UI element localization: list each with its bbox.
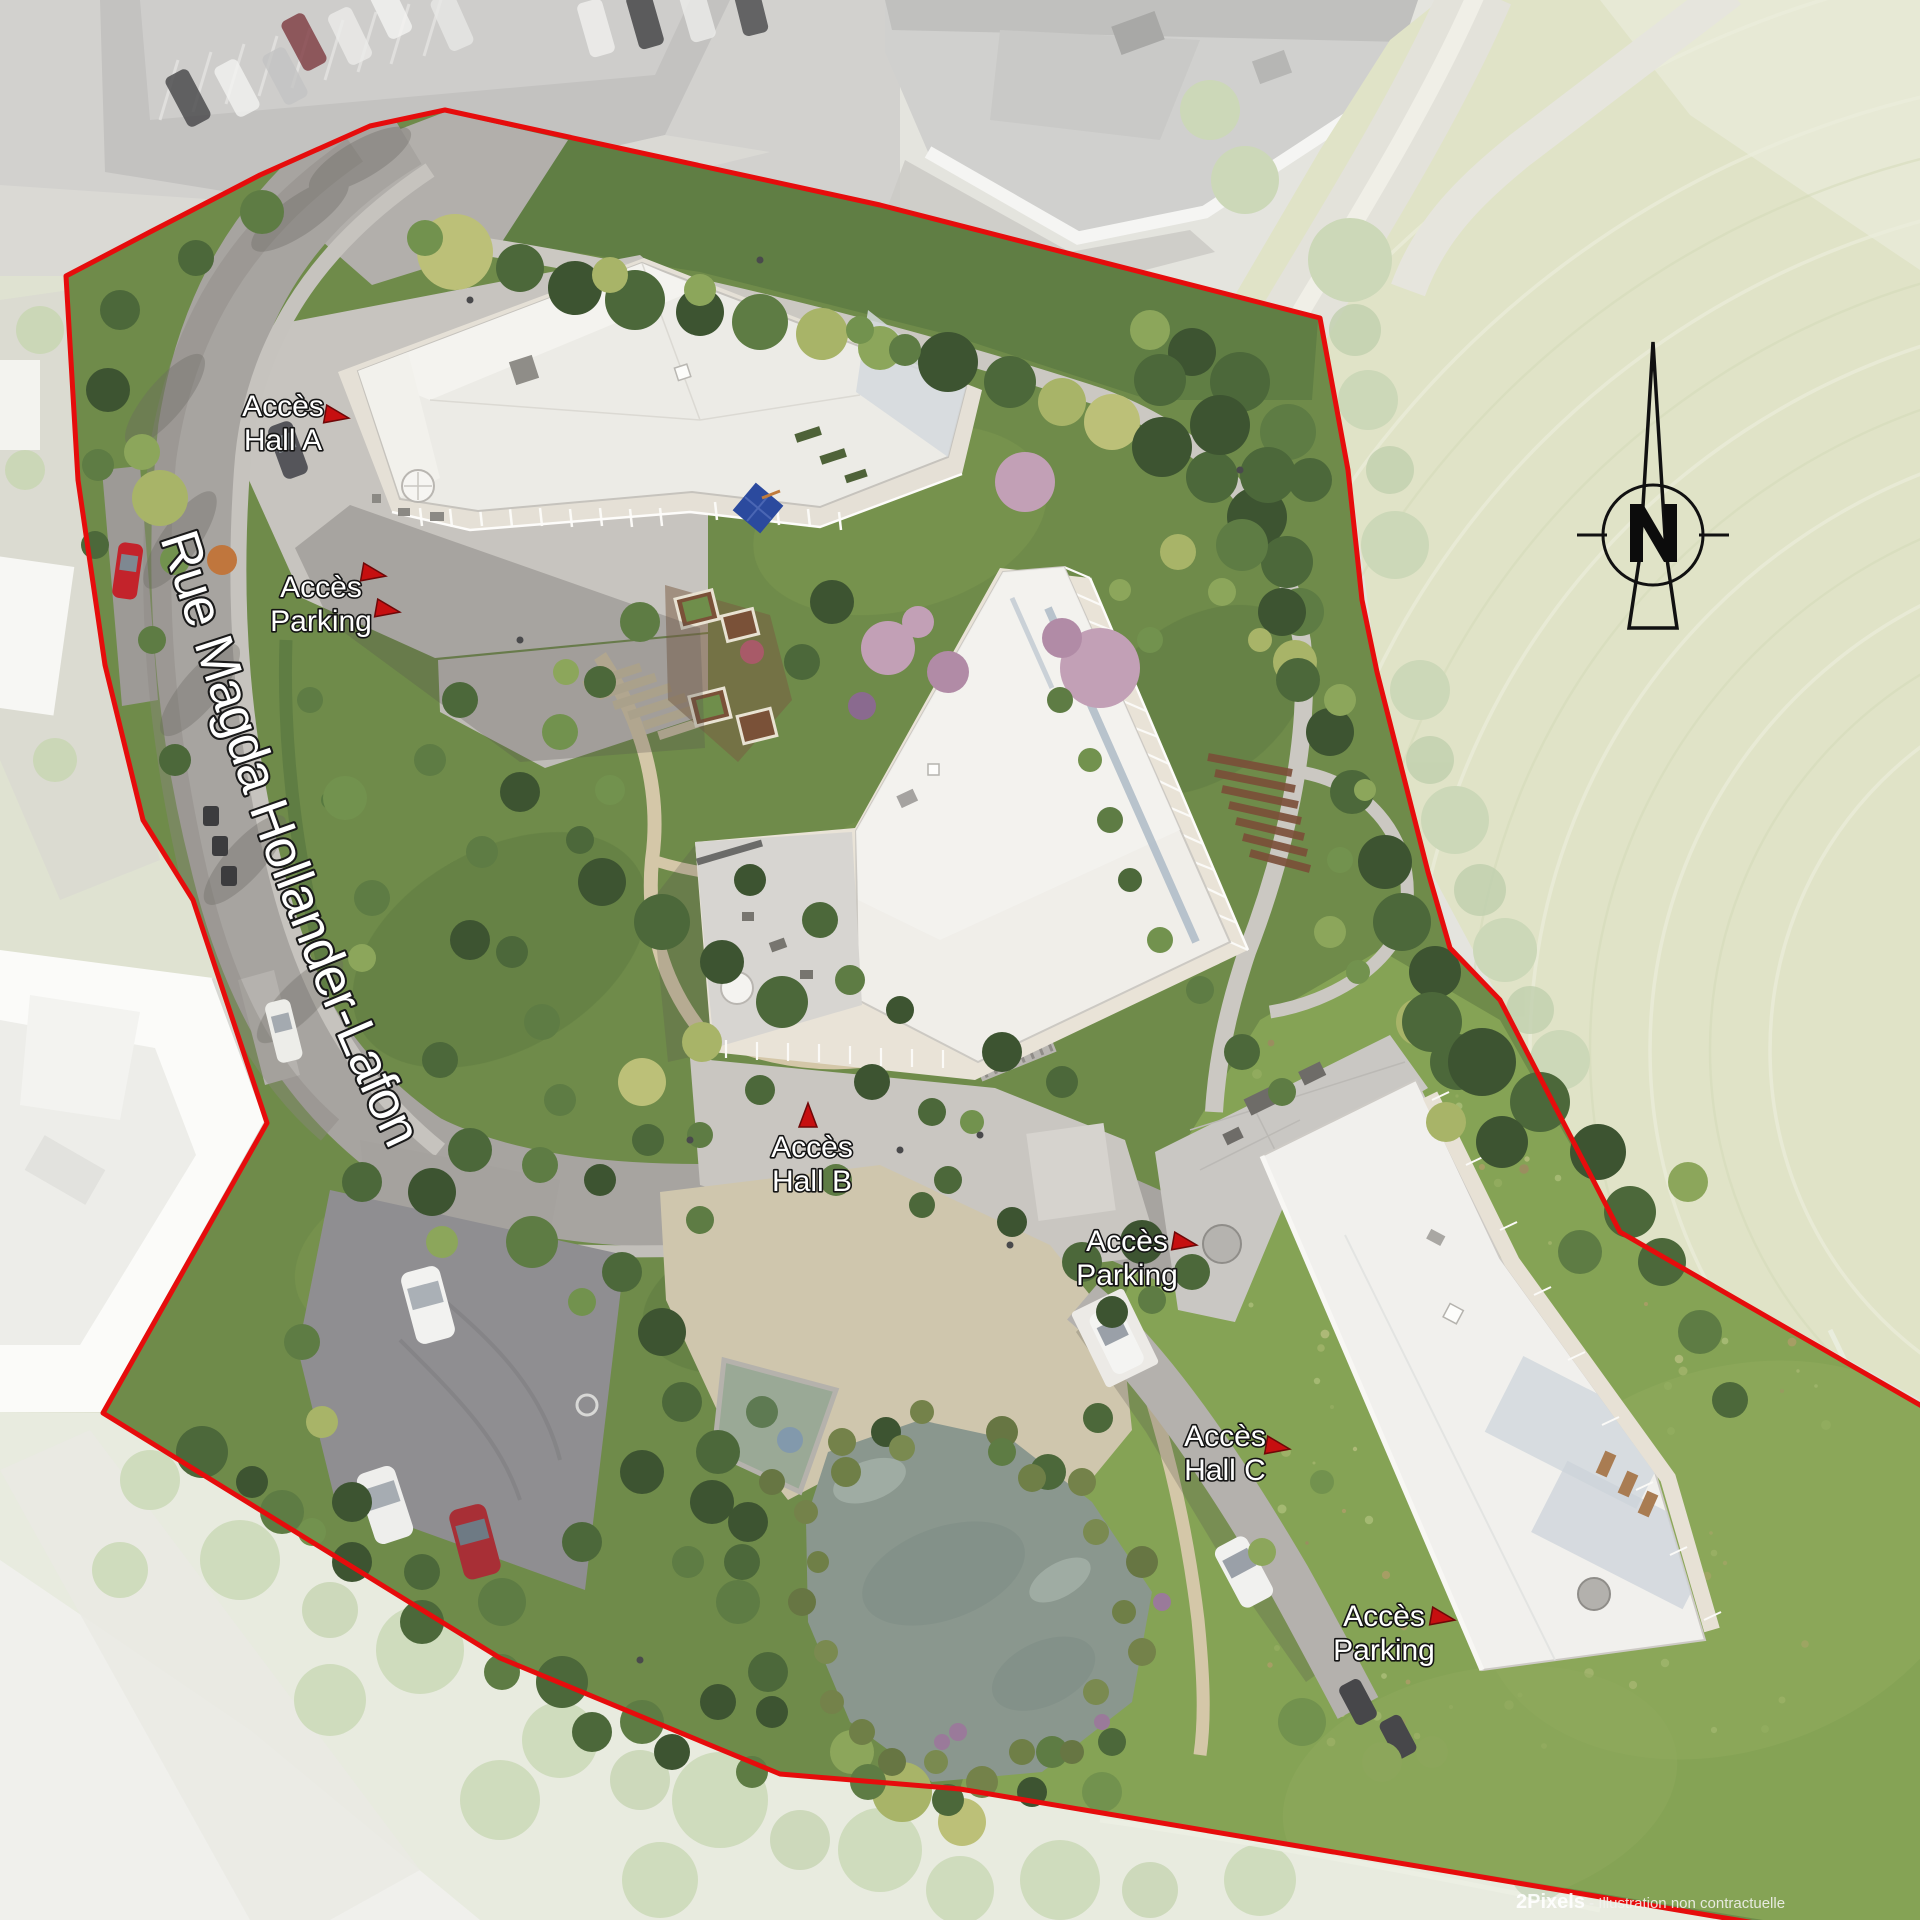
svg-text:AccèsHall A: AccèsHall A bbox=[242, 390, 324, 457]
svg-text:AccèsParking: AccèsParking bbox=[270, 571, 372, 638]
svg-text:AccèsParking: AccèsParking bbox=[1076, 1225, 1178, 1292]
svg-text:2Pixels - Illustration non con: 2Pixels - Illustration non contractuelle bbox=[1516, 1891, 1785, 1913]
svg-text:AccèsHall B: AccèsHall B bbox=[771, 1131, 853, 1198]
svg-text:AccèsParking: AccèsParking bbox=[1333, 1600, 1435, 1667]
svg-text:AccèsHall C: AccèsHall C bbox=[1184, 1420, 1266, 1487]
